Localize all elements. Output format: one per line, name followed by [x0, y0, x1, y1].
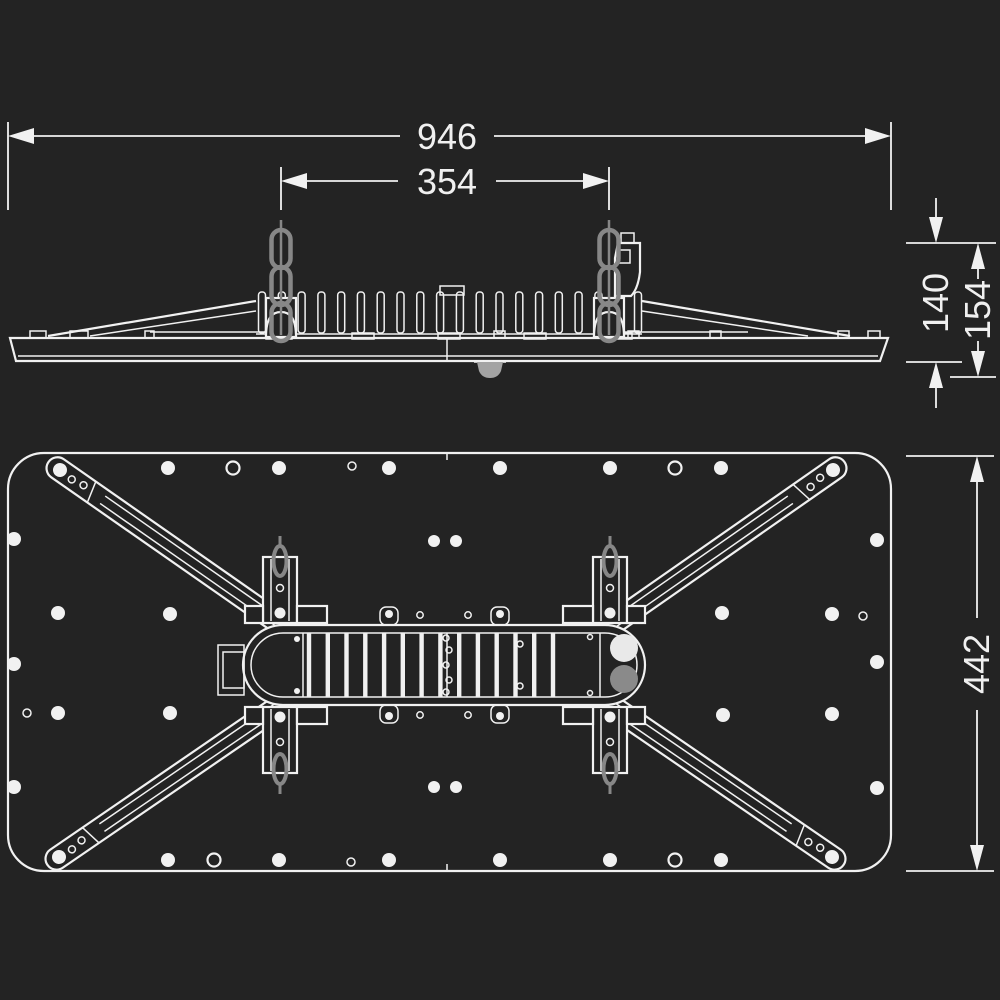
arrowhead-right	[583, 173, 609, 189]
dimension-label-overall-width: 946	[417, 116, 477, 157]
dimension-drawing: 946 354 140 154	[0, 0, 1000, 1000]
heatsink	[256, 286, 642, 339]
central-body	[218, 536, 645, 794]
dimension-label-body-height: 140	[915, 273, 956, 333]
dimension-overall-height: 154	[950, 243, 998, 377]
heatsink-fins	[259, 292, 642, 333]
side-elevation-view: 946 354 140 154	[8, 116, 998, 408]
arrowhead-left	[8, 128, 34, 144]
arrowhead-top	[971, 243, 985, 269]
arrowhead-bottom	[970, 845, 984, 871]
dimension-body-depth: 442	[906, 456, 997, 871]
support-wing-left	[48, 301, 288, 336]
dimension-label-suspension-spacing: 354	[417, 161, 477, 202]
port-circle-white	[610, 634, 638, 662]
sensor-dome	[477, 362, 503, 378]
dimension-suspension-spacing: 354	[281, 161, 609, 210]
arrowhead-bottom	[929, 362, 943, 388]
bracket-top-left	[245, 536, 327, 623]
arrowhead-right	[865, 128, 891, 144]
support-wing-right	[610, 301, 850, 336]
arrowhead-top	[970, 456, 984, 482]
underside-plan-view: 442	[7, 453, 997, 874]
dimension-label-body-depth: 442	[956, 634, 997, 694]
side-connector-tab	[218, 645, 244, 695]
arrowhead-top	[929, 217, 943, 243]
bracket-bottom-right	[563, 707, 645, 794]
fixture-body-panel	[10, 331, 888, 378]
bracket-top-right	[563, 536, 645, 623]
arrowhead-left	[281, 173, 307, 189]
panel-outline	[10, 338, 888, 361]
arrowhead-bottom	[971, 351, 985, 377]
bracket-bottom-left	[245, 707, 327, 794]
dimension-label-overall-height: 154	[957, 280, 998, 340]
port-circle-gray	[610, 665, 638, 693]
